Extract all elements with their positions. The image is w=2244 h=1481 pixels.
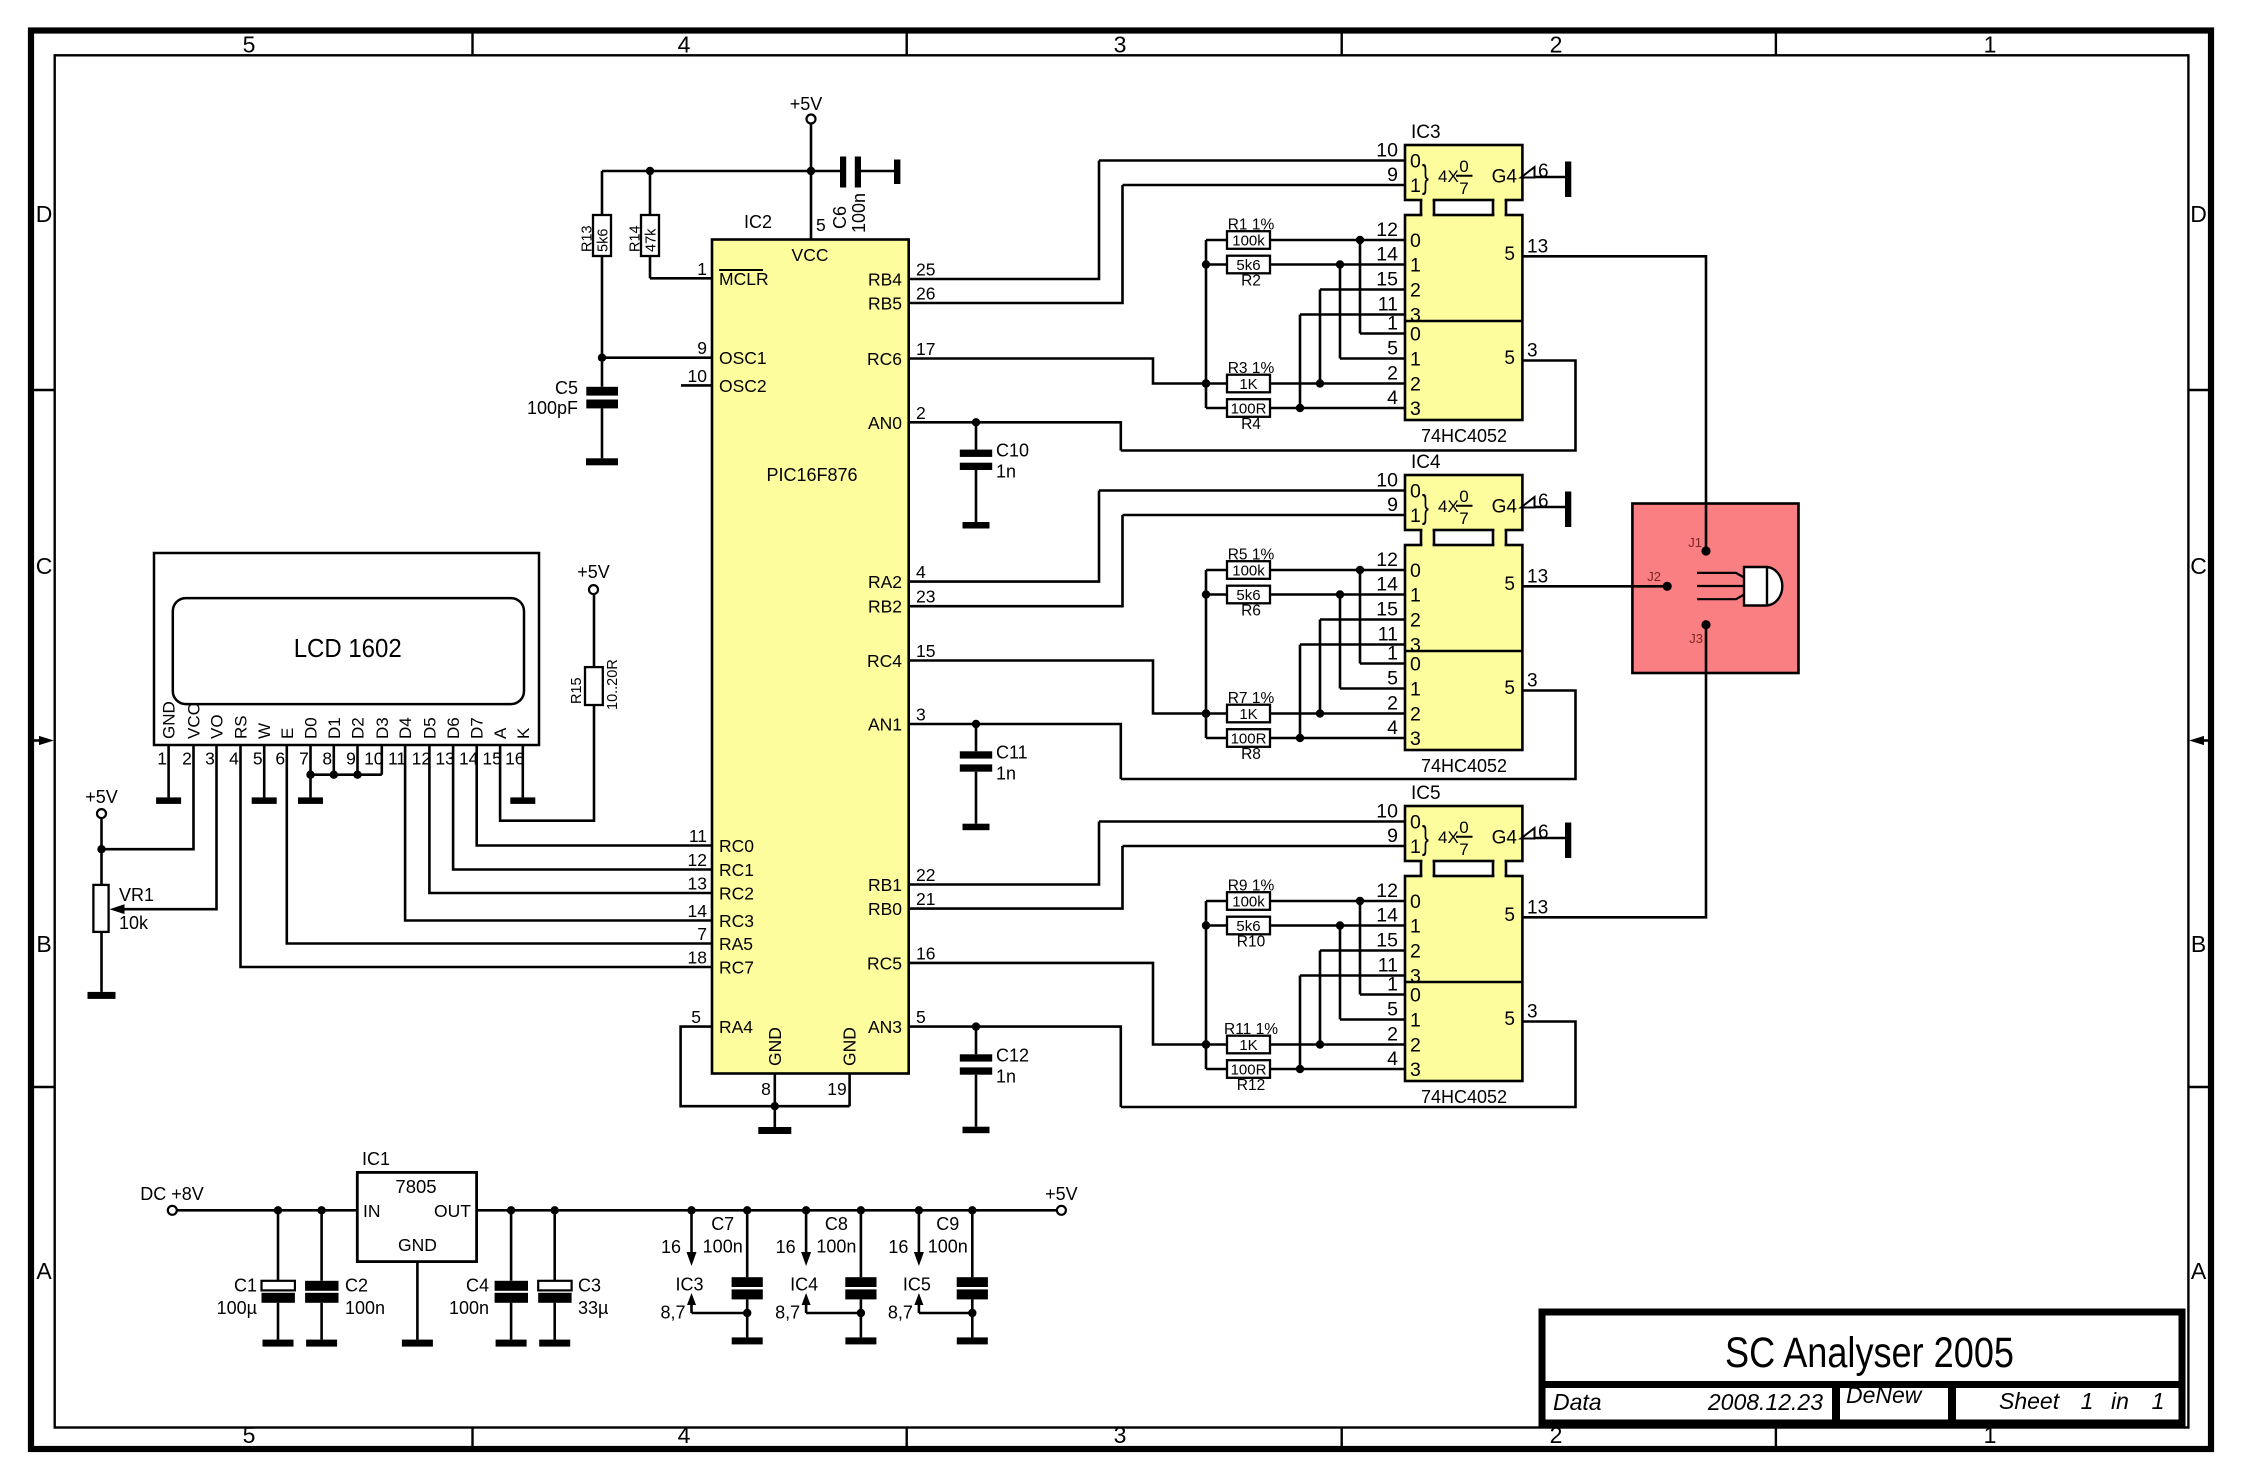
svg-text:74HC4052: 74HC4052 (1421, 1087, 1507, 1107)
svg-text:C3: C3 (578, 1276, 601, 1296)
svg-text:1: 1 (1410, 255, 1421, 277)
svg-text:C5: C5 (555, 378, 578, 398)
svg-text:R1 1%: R1 1% (1228, 217, 1275, 234)
svg-text:R3 1%: R3 1% (1228, 360, 1275, 377)
svg-text:10: 10 (688, 366, 708, 386)
svg-text:4: 4 (1387, 1048, 1398, 1070)
svg-text:8: 8 (761, 1079, 771, 1099)
svg-text:C11: C11 (996, 742, 1028, 762)
svg-text:8,7: 8,7 (888, 1303, 913, 1323)
svg-text:IC3: IC3 (675, 1275, 703, 1295)
svg-text:3: 3 (916, 705, 926, 725)
svg-text:9: 9 (697, 338, 707, 358)
svg-text:11: 11 (388, 749, 406, 769)
svg-text:1n: 1n (996, 462, 1016, 482)
svg-text:19: 19 (827, 1079, 846, 1099)
svg-text:1: 1 (1410, 916, 1421, 938)
svg-text:7: 7 (1459, 840, 1468, 859)
svg-text:in: in (2111, 1388, 2129, 1414)
svg-text:1: 1 (1410, 505, 1421, 527)
svg-text:4X: 4X (1438, 497, 1459, 516)
svg-text:RB4: RB4 (868, 270, 902, 290)
svg-text:5: 5 (1504, 678, 1515, 699)
svg-text:IC3: IC3 (1411, 122, 1441, 143)
svg-text:3: 3 (1527, 671, 1538, 692)
svg-text:RC1: RC1 (719, 860, 754, 880)
svg-text:2: 2 (916, 403, 926, 423)
svg-text:GND: GND (765, 1027, 785, 1066)
svg-text:1: 1 (2081, 1388, 2094, 1414)
svg-text:LCD 1602: LCD 1602 (294, 633, 402, 663)
svg-text:PIC16F876: PIC16F876 (766, 465, 857, 485)
svg-text:22: 22 (916, 865, 935, 885)
svg-text:7: 7 (697, 924, 707, 944)
svg-text:5: 5 (691, 1007, 701, 1027)
svg-text:D3: D3 (373, 717, 392, 739)
svg-text:RS: RS (232, 715, 251, 739)
svg-text:B: B (36, 931, 51, 957)
svg-text:AN3: AN3 (868, 1017, 902, 1037)
svg-text:GND: GND (398, 1235, 437, 1255)
svg-text:16: 16 (888, 1237, 908, 1257)
svg-text:14: 14 (1376, 244, 1398, 266)
svg-text:100k: 100k (1232, 562, 1265, 579)
svg-text:14: 14 (1376, 905, 1398, 927)
svg-text:2: 2 (1387, 693, 1398, 715)
svg-text:R13: R13 (580, 225, 596, 252)
svg-text:C12: C12 (996, 1045, 1029, 1065)
svg-text:5: 5 (1387, 338, 1398, 360)
svg-text:2: 2 (1387, 363, 1398, 385)
svg-text:3: 3 (1114, 1422, 1127, 1448)
svg-text:R15: R15 (569, 677, 585, 704)
svg-text:J3: J3 (1689, 631, 1703, 646)
svg-text:IC4: IC4 (1411, 452, 1441, 473)
svg-text:7805: 7805 (395, 1176, 436, 1197)
svg-text:C10: C10 (996, 441, 1029, 461)
svg-text:23: 23 (916, 587, 935, 607)
svg-text:1: 1 (2152, 1388, 2165, 1414)
svg-text:RB1: RB1 (868, 875, 902, 895)
svg-text:VCC: VCC (792, 245, 829, 265)
svg-text:0: 0 (1410, 891, 1421, 913)
svg-text:21: 21 (916, 889, 935, 909)
svg-text:100pF: 100pF (527, 398, 578, 418)
svg-text:R14: R14 (628, 225, 644, 252)
svg-text:2: 2 (1550, 32, 1563, 58)
svg-text:1: 1 (1410, 175, 1421, 197)
svg-text:+5V: +5V (790, 94, 823, 114)
svg-text:7: 7 (1459, 509, 1468, 528)
svg-text:9: 9 (1387, 164, 1398, 186)
svg-text:0: 0 (1410, 654, 1421, 676)
svg-text:G4: G4 (1492, 497, 1518, 518)
svg-text:R11 1%: R11 1% (1224, 1021, 1278, 1038)
svg-text:RA4: RA4 (719, 1017, 753, 1037)
svg-text:10: 10 (1376, 140, 1398, 162)
svg-text:Sheet: Sheet (1999, 1388, 2061, 1414)
svg-text:1: 1 (1410, 585, 1421, 607)
svg-text:2: 2 (1410, 374, 1421, 396)
svg-text:A: A (36, 1258, 52, 1284)
svg-text:3: 3 (1410, 398, 1421, 420)
svg-text:4: 4 (916, 562, 926, 582)
svg-text:100k: 100k (1232, 232, 1265, 249)
svg-text:C7: C7 (711, 1214, 734, 1234)
svg-text:D4: D4 (396, 717, 415, 739)
svg-text:D7: D7 (468, 717, 487, 739)
svg-text:OUT: OUT (434, 1201, 471, 1221)
svg-text:17: 17 (916, 339, 935, 359)
svg-text:100n: 100n (345, 1298, 385, 1318)
svg-text:0: 0 (1410, 812, 1421, 834)
svg-text:4: 4 (1387, 717, 1398, 739)
svg-text:5: 5 (1387, 668, 1398, 690)
svg-text:5k6: 5k6 (1236, 587, 1260, 604)
svg-text:2: 2 (1410, 941, 1421, 963)
svg-text:10: 10 (1376, 470, 1398, 492)
svg-text:G4: G4 (1492, 167, 1518, 188)
svg-text:1K: 1K (1239, 376, 1257, 393)
svg-text:C6: C6 (830, 206, 850, 229)
svg-text:16: 16 (916, 943, 935, 963)
svg-text:C9: C9 (936, 1214, 959, 1234)
svg-text:12: 12 (1376, 219, 1398, 241)
svg-text:100n: 100n (449, 1298, 489, 1318)
svg-text:+5V: +5V (85, 787, 118, 807)
svg-text:5: 5 (1504, 244, 1515, 265)
svg-text:R12: R12 (1237, 1077, 1265, 1094)
svg-text:C: C (36, 553, 53, 579)
svg-text:10: 10 (1376, 801, 1398, 823)
svg-text:R8: R8 (1241, 746, 1261, 763)
svg-text:0: 0 (1410, 151, 1421, 173)
svg-text:16: 16 (776, 1237, 796, 1257)
svg-text:+5V: +5V (577, 562, 610, 582)
svg-text:4: 4 (1387, 387, 1398, 409)
svg-text:74HC4052: 74HC4052 (1421, 756, 1507, 776)
svg-text:1: 1 (1410, 1010, 1421, 1032)
svg-text:2: 2 (1410, 280, 1421, 302)
svg-text:RA2: RA2 (868, 572, 902, 592)
svg-text:D5: D5 (420, 717, 439, 739)
svg-text:3: 3 (1527, 1002, 1538, 1023)
svg-text:5: 5 (1504, 574, 1515, 595)
svg-text:9: 9 (346, 749, 356, 769)
svg-text:13: 13 (1527, 566, 1548, 587)
svg-text:3: 3 (1410, 728, 1421, 750)
svg-text:RC5: RC5 (867, 953, 902, 973)
svg-text:100n: 100n (816, 1237, 856, 1257)
svg-text:4X: 4X (1438, 828, 1459, 847)
svg-text:K: K (514, 727, 533, 739)
svg-text:VO: VO (208, 714, 227, 739)
svg-text:5: 5 (243, 32, 256, 58)
svg-text:8: 8 (322, 749, 332, 769)
svg-text:2: 2 (1410, 610, 1421, 632)
svg-text:R10: R10 (1237, 934, 1266, 951)
svg-text:0: 0 (1410, 560, 1421, 582)
svg-text:100n: 100n (849, 193, 869, 233)
svg-text:100R: 100R (1231, 730, 1267, 747)
svg-text:1: 1 (1410, 836, 1421, 858)
svg-text:0: 0 (1459, 818, 1468, 837)
svg-text:100n: 100n (703, 1237, 743, 1257)
svg-text:IC1: IC1 (362, 1149, 390, 1169)
svg-text:7: 7 (299, 749, 309, 769)
svg-text:RC4: RC4 (867, 651, 902, 671)
svg-text:AN0: AN0 (868, 413, 902, 433)
svg-text:RC3: RC3 (719, 911, 754, 931)
svg-text:5k6: 5k6 (1236, 257, 1260, 274)
svg-text:+5V: +5V (1045, 1184, 1078, 1204)
svg-text:6: 6 (1538, 161, 1549, 182)
svg-text:15: 15 (1376, 930, 1398, 952)
svg-text:1K: 1K (1239, 1037, 1257, 1054)
svg-text:5: 5 (243, 1422, 256, 1448)
svg-text:1: 1 (697, 259, 707, 279)
svg-text:D: D (2190, 201, 2207, 227)
svg-text:5: 5 (1504, 905, 1515, 926)
svg-text:5: 5 (1504, 348, 1515, 369)
svg-text:RC6: RC6 (867, 349, 902, 369)
svg-text:0: 0 (1410, 324, 1421, 346)
svg-text:13: 13 (688, 874, 707, 894)
svg-text:100R: 100R (1231, 1061, 1267, 1078)
svg-text:}: } (1422, 819, 1429, 856)
svg-text:5: 5 (253, 749, 263, 769)
svg-text:12: 12 (688, 850, 707, 870)
svg-text:B: B (2191, 931, 2206, 957)
svg-text:100µ: 100µ (217, 1298, 257, 1318)
svg-text:DeNew: DeNew (1846, 1382, 1923, 1408)
svg-text:VR1: VR1 (119, 885, 154, 905)
svg-text:OSC1: OSC1 (719, 348, 767, 368)
svg-text:5k6: 5k6 (596, 229, 612, 252)
svg-text:GND: GND (840, 1027, 860, 1066)
svg-text:4: 4 (678, 1422, 691, 1448)
svg-text:C1: C1 (234, 1276, 257, 1296)
svg-text:3: 3 (1114, 32, 1127, 58)
svg-text:IC5: IC5 (903, 1275, 931, 1295)
svg-text:100R: 100R (1231, 400, 1267, 417)
svg-text:R2: R2 (1241, 273, 1261, 290)
svg-text:J2: J2 (1647, 569, 1661, 584)
svg-text:IC2: IC2 (744, 212, 772, 232)
svg-text:2: 2 (1387, 1024, 1398, 1046)
svg-text:DC +8V: DC +8V (140, 1184, 204, 1204)
svg-text:47k: 47k (644, 228, 660, 252)
svg-text:RC7: RC7 (719, 958, 754, 978)
svg-text:9: 9 (1387, 494, 1398, 516)
svg-text:9: 9 (1387, 825, 1398, 847)
svg-text:MCLR: MCLR (719, 269, 769, 289)
svg-text:10..20R: 10..20R (605, 659, 621, 710)
svg-text:5: 5 (816, 215, 826, 235)
svg-text:C8: C8 (825, 1214, 848, 1234)
svg-text:}: } (1422, 488, 1429, 525)
svg-text:1K: 1K (1239, 706, 1257, 723)
svg-text:15: 15 (1376, 599, 1398, 621)
svg-text:16: 16 (661, 1237, 681, 1257)
svg-text:14: 14 (1376, 574, 1398, 596)
svg-text:R7 1%: R7 1% (1228, 690, 1275, 707)
svg-text:13: 13 (1527, 236, 1548, 257)
svg-text:GND: GND (160, 701, 179, 739)
svg-text:3: 3 (1527, 341, 1538, 362)
svg-text:2: 2 (182, 749, 192, 769)
svg-text:100n: 100n (928, 1237, 968, 1257)
svg-text:D2: D2 (349, 717, 368, 739)
svg-text:AN1: AN1 (868, 715, 902, 735)
svg-text:6: 6 (1538, 822, 1549, 843)
svg-text:SC Analyser 2005: SC Analyser 2005 (1725, 1329, 2014, 1377)
svg-text:0: 0 (1410, 481, 1421, 503)
svg-text:5: 5 (1387, 999, 1398, 1021)
svg-text:1: 1 (1410, 679, 1421, 701)
svg-text:0: 0 (1459, 157, 1468, 176)
svg-text:}: } (1422, 158, 1429, 195)
svg-text:2: 2 (1410, 1035, 1421, 1057)
svg-text:14: 14 (688, 901, 708, 921)
svg-text:2: 2 (1410, 704, 1421, 726)
svg-text:4: 4 (678, 32, 691, 58)
svg-text:1n: 1n (996, 763, 1016, 783)
svg-text:6: 6 (275, 749, 285, 769)
svg-text:E: E (278, 728, 297, 739)
svg-text:2008.12.23: 2008.12.23 (1707, 1389, 1823, 1415)
svg-text:J1: J1 (1688, 535, 1702, 550)
svg-text:A: A (2191, 1258, 2207, 1284)
svg-text:12: 12 (1376, 880, 1398, 902)
svg-text:5k6: 5k6 (1236, 918, 1260, 935)
svg-text:D0: D0 (302, 717, 321, 739)
svg-text:4: 4 (229, 749, 239, 769)
svg-text:3: 3 (1410, 1059, 1421, 1081)
svg-text:C4: C4 (466, 1276, 489, 1296)
svg-text:0: 0 (1459, 487, 1468, 506)
svg-text:10k: 10k (119, 913, 149, 933)
svg-text:1: 1 (157, 749, 167, 769)
svg-text:IC4: IC4 (790, 1275, 818, 1295)
svg-text:IC5: IC5 (1411, 783, 1441, 804)
svg-text:1: 1 (1410, 349, 1421, 371)
svg-text:5: 5 (916, 1007, 926, 1027)
svg-text:5: 5 (1504, 1009, 1515, 1030)
svg-text:8,7: 8,7 (775, 1303, 800, 1323)
svg-text:RC0: RC0 (719, 836, 754, 856)
svg-text:W: W (255, 723, 274, 739)
svg-text:12: 12 (1376, 549, 1398, 571)
svg-text:R9 1%: R9 1% (1228, 878, 1275, 895)
svg-text:Data: Data (1553, 1389, 1602, 1415)
svg-text:RC2: RC2 (719, 884, 754, 904)
svg-text:IN: IN (363, 1201, 381, 1221)
svg-text:RA5: RA5 (719, 934, 753, 954)
svg-text:A: A (491, 727, 510, 739)
svg-text:3: 3 (205, 749, 215, 769)
svg-text:7: 7 (1459, 179, 1468, 198)
svg-text:15: 15 (916, 641, 935, 661)
svg-text:25: 25 (916, 260, 935, 280)
svg-text:26: 26 (916, 284, 935, 304)
svg-text:D6: D6 (444, 717, 463, 739)
svg-text:RB0: RB0 (868, 899, 902, 919)
svg-text:D: D (36, 201, 53, 227)
svg-text:VCC: VCC (185, 703, 204, 739)
svg-text:C2: C2 (345, 1276, 368, 1296)
svg-text:RB2: RB2 (868, 597, 902, 617)
svg-text:R6: R6 (1241, 603, 1261, 620)
svg-text:11: 11 (689, 826, 707, 846)
svg-text:18: 18 (688, 948, 707, 968)
svg-text:R4: R4 (1241, 416, 1261, 433)
svg-text:C: C (2190, 553, 2207, 579)
svg-text:74HC4052: 74HC4052 (1421, 426, 1507, 446)
svg-text:33µ: 33µ (578, 1298, 608, 1318)
svg-text:13: 13 (1527, 897, 1548, 918)
svg-text:D1: D1 (325, 717, 344, 739)
svg-text:0: 0 (1410, 985, 1421, 1007)
svg-text:G4: G4 (1492, 828, 1518, 849)
svg-text:4X: 4X (1438, 167, 1459, 186)
svg-text:0: 0 (1410, 230, 1421, 252)
svg-text:1: 1 (1984, 32, 1997, 58)
svg-text:6: 6 (1538, 491, 1549, 512)
svg-text:100k: 100k (1232, 893, 1265, 910)
svg-text:15: 15 (1376, 269, 1398, 291)
svg-text:1n: 1n (996, 1066, 1016, 1086)
svg-text:R5 1%: R5 1% (1228, 547, 1275, 564)
svg-text:8,7: 8,7 (660, 1303, 685, 1323)
svg-text:RB5: RB5 (868, 294, 902, 314)
svg-text:OSC2: OSC2 (719, 376, 767, 396)
